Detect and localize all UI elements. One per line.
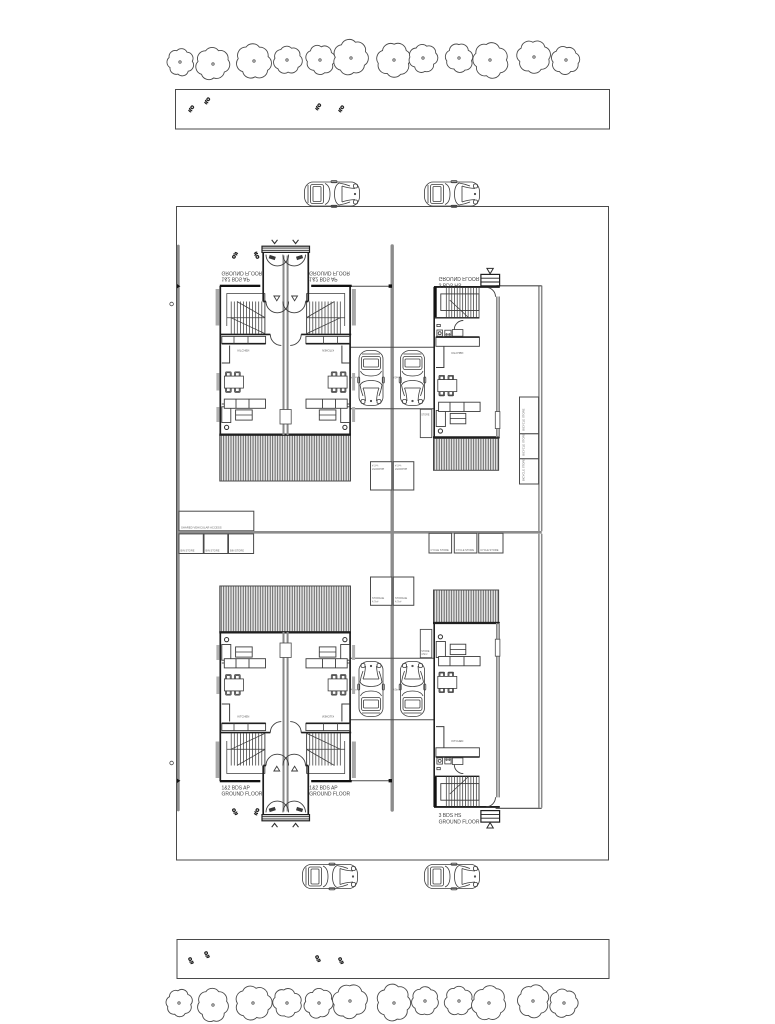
svg-text:1&2 BDS AP: 1&2 BDS AP bbox=[222, 785, 251, 791]
svg-text:CYCLE STORE: CYCLE STORE bbox=[431, 548, 450, 552]
svg-text:STORE: STORE bbox=[421, 414, 430, 417]
svg-text:GROUND FLOOR: GROUND FLOOR bbox=[439, 275, 480, 281]
svg-text:GROUND FLOOR: GROUND FLOOR bbox=[309, 792, 350, 798]
svg-text:BIN STORE: BIN STORE bbox=[181, 549, 195, 553]
svg-text:CYCLE STORE: CYCLE STORE bbox=[480, 548, 499, 552]
svg-text:GROUND FLOOR: GROUND FLOOR bbox=[222, 792, 263, 798]
svg-text:CYCLE STORE: CYCLE STORE bbox=[456, 548, 475, 552]
svg-text:KITCHEN: KITCHEN bbox=[452, 351, 464, 355]
svg-text:4.5m²: 4.5m² bbox=[421, 653, 427, 656]
svg-text:BICYCLE STORE: BICYCLE STORE bbox=[522, 433, 526, 455]
svg-text:BIN STORE: BIN STORE bbox=[230, 549, 244, 553]
svg-text:SHARED VEHICULAR ACCESS: SHARED VEHICULAR ACCESS bbox=[181, 525, 222, 529]
svg-text:4.5m: 4.5m bbox=[393, 688, 399, 692]
svg-text:GROUND FLOOR: GROUND FLOOR bbox=[439, 819, 480, 825]
svg-text:4.7m²: 4.7m² bbox=[395, 600, 402, 603]
svg-text:1&2 BDS AP: 1&2 BDS AP bbox=[309, 785, 338, 791]
svg-text:4.7m²: 4.7m² bbox=[372, 600, 379, 603]
svg-text:BIN STORE: BIN STORE bbox=[206, 549, 220, 553]
svg-text:BICYCLE STORE: BICYCLE STORE bbox=[522, 408, 526, 430]
svg-text:KITCHEN: KITCHEN bbox=[238, 715, 250, 719]
svg-text:KITCHEN: KITCHEN bbox=[452, 739, 464, 743]
svg-text:BICYCLE STORE: BICYCLE STORE bbox=[522, 459, 526, 481]
svg-text:3 BDS HS: 3 BDS HS bbox=[439, 281, 462, 287]
svg-text:3 BDS HS: 3 BDS HS bbox=[439, 813, 462, 819]
